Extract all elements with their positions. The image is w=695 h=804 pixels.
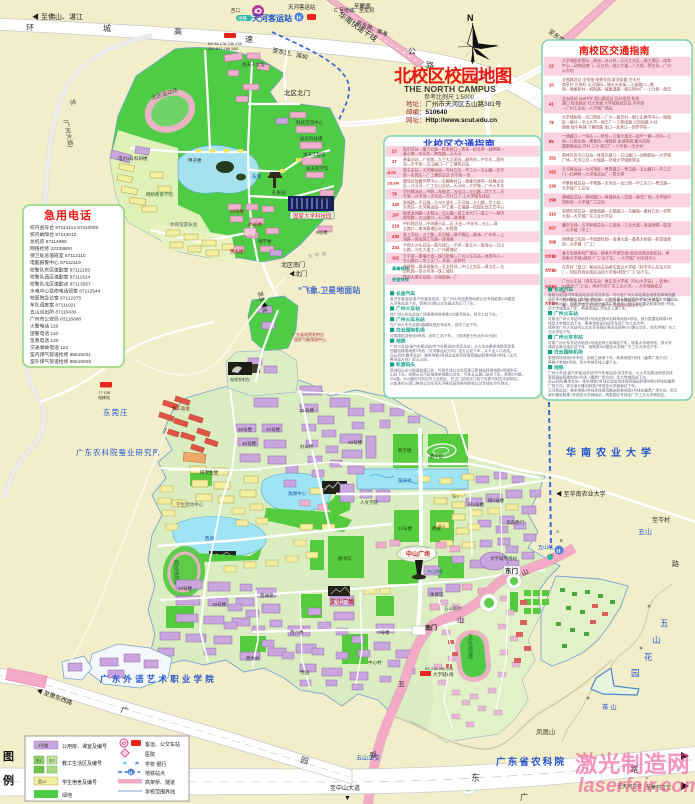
svg-text:科技交流中心: 科技交流中心: [296, 119, 323, 126]
svg-text:3号楼: 3号楼: [38, 742, 48, 748]
svg-text:公: 公: [408, 47, 416, 56]
svg-text:学生活动中心: 学生活动中心: [176, 501, 203, 508]
svg-text:天河客运站: 天河客运站: [252, 13, 292, 23]
svg-text:交通事故电话 122: 交通事故电话 122: [30, 344, 68, 351]
svg-text:234: 234: [392, 245, 400, 250]
svg-text:230: 230: [549, 184, 557, 189]
svg-text:广东外语艺术职业学院: 广东外语艺术职业学院: [100, 674, 217, 684]
svg-text:学校 银行: 学校 银行: [145, 761, 166, 768]
svg-text:西路站转乘地铁3号线（天河客运站方向）至五山站下车，从Ａ出入: 西路站转乘地铁3号线（天河客运站方向）至五山站下车，从Ａ出入口出站。: [390, 348, 514, 353]
svg-text:总机房 87114996: 总机房 87114996: [30, 238, 67, 245]
svg-text:励吾科技楼: 励吾科技楼: [300, 135, 323, 142]
svg-text:78: 78: [549, 120, 554, 125]
svg-text:北校区校园地图: 北校区校园地图: [394, 66, 512, 86]
svg-text:41: 41: [549, 101, 554, 106]
svg-text:西湖苑: 西湖苑: [260, 592, 274, 599]
svg-text:30号楼: 30号楼: [230, 208, 245, 215]
svg-text:40号楼: 40号楼: [266, 426, 281, 433]
svg-text:逸夫工程馆: 逸夫工程馆: [303, 151, 326, 158]
svg-text:长途汽车: 长途汽车: [396, 290, 415, 297]
svg-text:在广州火车东站乘4路模块观光专线车，到华工站下车。: 在广州火车东站乘4路模块观光专线车，到华工站下车。: [390, 322, 481, 327]
svg-text:广场—天河立交—大观路—环城大学城欧警站: 广场—天河立交—大观路—环城大学城欧警站: [562, 157, 640, 162]
svg-text:大学城广工总站: 大学城广工总站: [562, 185, 589, 190]
svg-text:水电中心急修电话班室 87112944: 水电中心急修电话班室 87112944: [30, 287, 101, 294]
svg-text:广州市公安局 83116688: 广州市公安局 83116688: [30, 316, 81, 323]
svg-text:广州火车站/省汽车客运总站/市汽车客运站/流花车站：从火车站: 广州火车站/省汽车客运总站/市汽车客运站/流花车站：从火车站乘坐地铁至体: [548, 370, 673, 375]
svg-text:城: 城: [103, 24, 111, 33]
svg-text:东: 东: [471, 772, 480, 783]
svg-text:东门: 东门: [505, 566, 519, 575]
svg-text:22: 22: [549, 64, 554, 69]
svg-text:五山路口—华工正门—龙洞—至转村: 五山路口—华工正门—龙洞—至转村: [403, 258, 465, 263]
svg-text:博学楼: 博学楼: [258, 238, 272, 245]
svg-text:35号楼: 35号楼: [248, 221, 263, 228]
svg-text:围墩 坂平舆辅 下塘西路 龙口—龙洞口—世界学院—: 围墩 坂平舆辅 下塘西路 龙口—龙洞口—世界学院—: [562, 125, 651, 130]
svg-text:再乘大学城4号线，到大学城专线上课下车。: 再乘大学城4号线，到大学城专线上课下车。: [548, 359, 620, 364]
svg-text:长途汽车: 长途汽车: [554, 286, 573, 293]
svg-text:医院: 医院: [145, 751, 155, 758]
svg-text:507: 507: [549, 226, 557, 231]
svg-text:H: H: [557, 549, 561, 555]
svg-text:东1: 东1: [452, 493, 459, 499]
svg-text:北区南门: 北区南门: [281, 261, 305, 269]
svg-text:五山站: 五山站: [538, 544, 553, 551]
svg-text:府—大学城（广工）: 府—大学城（广工）: [562, 241, 597, 246]
svg-text:溪长隆站转乘7号线至大学城南站，再乘园区专线至广东工业大学城: 溪长隆站转乘7号线至大学城南站，再乘园区专线至广东工业大学城校区。: [548, 392, 668, 397]
svg-text:南校区交通指南: 南校区交通指南: [579, 44, 650, 57]
svg-text:298: 298: [549, 198, 557, 203]
svg-text:—广州工业区—大学城广场站: —广州工业区—大学城广场站: [562, 106, 613, 111]
svg-text:39号楼: 39号楼: [238, 426, 253, 433]
svg-text:230: 230: [392, 234, 400, 239]
svg-text:白云国际机场: 白云国际机场: [396, 327, 425, 334]
svg-text:可乘坐广州火车站内地铁2号线至昌岗站转乘地铁8号线，到万胜围: 可乘坐广州火车站内地铁2号线至昌岗站转乘地铁8号线，到万胜围站转乘4号: [548, 316, 672, 321]
svg-text:公路—沙庄大道工—广州黄埔站: 公路—沙庄大道工—广州黄埔站: [403, 247, 458, 252]
svg-text:和—墩尾新村—城和路—城尾道路—城头新村广—上分校—政法: 和—墩尾新村—城和路—城尾道路—城头新村广—上分校—政法: [562, 87, 671, 92]
svg-text:五山派出所 87110430: 五山派出所 87110430: [30, 309, 77, 316]
svg-text:学校范围界线: 学校范围界线: [145, 789, 175, 796]
svg-text:31号楼: 31号楼: [300, 407, 315, 414]
svg-text:天河客运站: 天河客运站: [288, 3, 316, 11]
svg-text:孔雀园: 孔雀园: [272, 189, 286, 196]
svg-text:五路口—南海黄埔区站—车陂路: 五路口—南海黄埔区站—车陂路: [403, 226, 458, 231]
svg-text:236路、B10路均可到达华工北校区，在正门站或北门站下车即: 236路、B10路均可到达华工北校区，在正门站或北门站下车即可到达本部校区。: [390, 376, 521, 381]
svg-text:中山广场: 中山广场: [406, 550, 430, 558]
svg-text:转乘大学城3线至“广工”站下车。—大学城广州专线中心: 转乘大学城3线至“广工”站下车。—大学城广州专线中心: [562, 255, 656, 260]
svg-text:197: 197: [392, 213, 400, 218]
svg-text:—大学城（华工）: —大学城（华工）: [562, 227, 593, 232]
svg-text:广州火车东站: 广州火车东站: [396, 316, 425, 323]
svg-text:体育馆游泳池: 体育馆游泳池: [170, 221, 197, 228]
svg-text:南门: 南门: [425, 624, 437, 632]
svg-text:急用电话: 急用电话: [44, 208, 92, 222]
svg-text:山: 山: [457, 615, 464, 624]
svg-text:78: 78: [392, 191, 397, 196]
svg-text:甲子楼: 甲子楼: [188, 157, 202, 164]
svg-text:THE NORTH CAMPUS: THE NORTH CAMPUS: [404, 84, 496, 94]
svg-text:130: 130: [392, 202, 400, 207]
svg-text:国家大学科技园: 国家大学科技园: [293, 212, 332, 220]
svg-text:站转乘地铁3号线（番禺广场方向），到汉溪长隆站转乘地铁7号线: 站转乘地铁3号线（番禺广场方向），到汉溪长隆站转乘地铁7号线至大学城南站。: [548, 297, 681, 302]
svg-text:“飞象.卫星地面站: “飞象.卫星地面站: [298, 285, 360, 295]
svg-text:山花园—至沙河顶—珠工城际: 山花园—至沙河顶—珠工城际: [403, 269, 454, 274]
svg-text:7号楼: 7号楼: [378, 629, 390, 636]
svg-text:至中山大道: 至中山大道: [330, 784, 360, 792]
svg-text:可乘国机场快线8号线，到华工站下车。（机场搭士的北约45分钟: 可乘国机场快线8号线，到华工站下车。（机场搭士的北约45分钟）: [390, 333, 499, 338]
svg-text:中山铜像: 中山铜像: [427, 568, 443, 574]
svg-text:室内煤气管道抢修 85515031: 室内煤气管道抢修 85515031: [30, 351, 91, 358]
svg-text:1号楼: 1号楼: [318, 195, 330, 202]
svg-text:电视发射台: 电视发射台: [230, 376, 250, 382]
svg-text:客运、公交车站: 客运、公交车站: [145, 741, 180, 748]
svg-text:匪警电话 110: 匪警电话 110: [30, 330, 59, 337]
svg-text:N: N: [467, 13, 474, 23]
svg-text:252 517 796 583: 252 517 796 583: [208, 46, 239, 51]
svg-text:部枢纽—大学城广工总站: 部枢纽—大学城广工总站: [562, 199, 605, 204]
svg-text:校医院急诊室 87112375: 校医院急诊室 87112375: [30, 295, 81, 302]
svg-text:白云机场/嘉禾车站：乘坐地铁3号线北延段至体育西路站转乘地铁: 白云机场/嘉禾车站：乘坐地铁3号线北延段至体育西路站转乘地铁3号线往番禺: [548, 379, 675, 384]
svg-text:西秀村: 西秀村: [246, 655, 260, 662]
svg-text:218: 218: [392, 223, 400, 228]
svg-text:绿地: 绿地: [62, 792, 72, 799]
svg-text:乘搭机场快线6号专线，到珠江新城下车，转乘地铁3号线（番禺广: 乘搭机场快线6号专线，到珠江新城下车，转乘地铁3号线（番禺广场方向），: [548, 355, 674, 360]
svg-text:火车站: 火车站: [562, 68, 574, 73]
svg-text:校警队西区值勤室 87111514: 校警队西区值勤室 87111514: [30, 273, 91, 280]
svg-text:暨南大道东延段—五湖观湖—广: 暨南大道东延段—五湖观湖—广: [403, 275, 458, 280]
svg-text:310: 310: [549, 212, 557, 217]
svg-text:教学区: 教学区: [430, 453, 444, 460]
svg-text:体育馆: 体育馆: [430, 591, 444, 598]
svg-text:广场方向，到汉溪长隆站转乘7号线至大学城南站下车。: 广场方向，到汉溪长隆站转乘7号线至大学城南站下车。: [548, 383, 639, 388]
svg-text:富都客运站 芳村 三沙 峻立厂—少年家—天才村: 富都客运站 芳村 三沙 峻立厂—少年家—天才村: [562, 143, 643, 148]
svg-text:86: 86: [549, 139, 554, 144]
svg-text:研1号楼: 研1号楼: [468, 501, 485, 508]
svg-text:B: B: [560, 538, 563, 543]
svg-text:高: 高: [174, 26, 182, 36]
svg-text:业大学站下车。: 业大学站下车。: [548, 329, 574, 334]
svg-text:例: 例: [3, 773, 14, 787]
svg-text:B2 236 296 506: B2 236 296 506: [425, 666, 454, 671]
svg-text:5号楼: 5号楼: [316, 229, 328, 236]
svg-text:天河客运站：可乘坐地铁3号线（番禺广场方向）至汉溪长隆站转乘: 天河客运站：可乘坐地铁3号线（番禺广场方向）至汉溪长隆站转乘地铁7号线，: [548, 301, 677, 306]
svg-text:网络抢修 22338800: 网络抢修 22338800: [30, 245, 72, 252]
svg-text:五: 五: [660, 618, 669, 628]
svg-text:五山新村: 五山新村: [444, 605, 462, 612]
svg-text:41/78: 41/78: [387, 171, 396, 175]
svg-text:天河客运站下车，转乘203路公交车直达至正门下车。: 天河客运站下车，转乘203路公交车直达至正门下车。: [390, 301, 477, 306]
svg-text:地铁: 地铁: [554, 364, 564, 371]
svg-text:路: 路: [672, 559, 679, 568]
svg-text:东1: 东1: [36, 758, 42, 763]
svg-text:广: 广: [520, 792, 528, 802]
svg-text:网址：Http://www.scut.edu.cn: 网址：Http://www.scut.edu.cn: [406, 115, 497, 124]
svg-text:逸湖中心: 逸湖中心: [288, 490, 306, 497]
svg-text:海路—珠海珠江东路—珠海城: 海路—珠海珠江东路—珠海城: [403, 237, 454, 242]
svg-text:规划路—五山路口—天河城—珠海楼: 规划路—五山路口—天河城—珠海楼: [403, 215, 465, 220]
svg-text:◀ 至华南农业大学: ◀ 至华南农业大学: [556, 490, 606, 498]
svg-text:17号楼: 17号楼: [178, 585, 193, 592]
svg-text:22: 22: [392, 149, 397, 154]
svg-text:广州火车站: 广州火车站: [396, 305, 420, 312]
svg-text:高架桥、隧道: 高架桥、隧道: [145, 779, 175, 786]
svg-text:20: 20: [549, 82, 554, 87]
svg-text:校警队东区值勤室 87111155: 校警队东区值勤室 87111155: [30, 266, 90, 273]
svg-text:茶 山: 茶 山: [602, 702, 617, 711]
svg-text:西六楼: 西六楼: [290, 629, 304, 636]
svg-text:山: 山: [652, 635, 661, 645]
svg-text:各汽车客运站/各汽车客运总站：至广州火车站乘侧地铁公交专线能: 各汽车客运站/各汽车客运总站：至广州火车站乘侧地铁公交专线能乘236路至: [390, 296, 515, 301]
svg-text:架—东莞庄—广工建筑总站 天平架—至: 架—东莞庄—广工建筑总站 天平架—至: [403, 172, 470, 177]
svg-text:新洲码头永兴街渡轮渡口处，可乘Ｂ线公交车至珠江新城站转乘地铁: 新洲码头永兴街渡轮渡口处，可乘Ｂ线公交车至珠江新城站转乘地铁3号线到五: [390, 367, 518, 372]
svg-text:各就近站/省汽车客运站总站/流花车站：可行至广州火车站乘坐地: 各就近站/省汽车客运站总站/流花车站：可行至广州火车站乘坐地铁至体育西路: [548, 292, 676, 297]
svg-text:262: 262: [549, 170, 557, 175]
svg-text:地铁: 地铁: [396, 337, 406, 344]
svg-text:45号楼: 45号楼: [242, 440, 257, 447]
svg-text:国家气象预测中心: 国家气象预测中心: [294, 336, 326, 342]
svg-text:游泳池: 游泳池: [398, 477, 412, 484]
svg-text:至岑村: 至岑村: [652, 516, 670, 524]
svg-text:A: A: [556, 529, 559, 534]
svg-text:人文学院: 人文学院: [360, 499, 378, 506]
svg-text:育西路站转乘地铁3号线（番禺广场方向）至大学城南站下车。: 育西路站转乘地铁3号线（番禺广场方向）至大学城南站下车。: [548, 374, 650, 379]
svg-text:天河客运站：乘坐地铁3号线至体育西路站转乘地铁3号线往番禺广: 天河客运站：乘坐地铁3号线至体育西路站转乘地铁3号线往番禺广场方向，到汉: [548, 387, 678, 392]
svg-text:五山: 五山: [638, 527, 652, 536]
svg-text:地铁站点: 地铁站点: [145, 770, 165, 777]
svg-text:大学城1: 大学城1: [545, 254, 557, 259]
svg-text:激光制造网: 激光制造网: [575, 751, 690, 777]
svg-text:校警队北区值勤点 87113557: 校警队北区值勤点 87113557: [30, 280, 91, 287]
svg-text:▼: ▼: [344, 795, 351, 802]
svg-text:从鱼珠码头渡口乘坐公交车至天河客运站转乘地铁或公交专线车均可: 从鱼珠码头渡口乘坐公交车至天河客运站转乘地铁或公交专线车均可到达。: [390, 381, 512, 386]
svg-text:竹园: 竹园: [300, 669, 309, 676]
svg-text:地址：广州市天河区五山路381号: 地址：广州市天河区五山路381号: [406, 99, 502, 108]
svg-text:车队调度室 87111021: 车队调度室 87111021: [30, 302, 76, 309]
svg-text:），到综合商业南区站转大学城4线至“广工”站下车。: ），到综合商业南区站转大学城4线至“广工”站下车。: [562, 269, 652, 274]
svg-text:131/140: 131/140: [387, 182, 399, 186]
svg-text:东2: 东2: [49, 758, 55, 763]
svg-text:东5: 东5: [438, 523, 445, 529]
svg-text:东湖: 东湖: [252, 173, 261, 180]
svg-text:火警电话 119: 火警电话 119: [30, 323, 59, 330]
svg-text:图书馆: 图书馆: [334, 599, 348, 606]
svg-text:白云国际机场: 白云国际机场: [554, 349, 583, 356]
svg-text:中心—动物园南门—区庄站—临江大道—人文馆—警东站—广州: 中心—动物园南门—区庄站—临江大道—人文馆—警东站—广州: [562, 63, 671, 68]
svg-text:保卫处总值班室 87112110: 保卫处总值班室 87112110: [30, 252, 86, 259]
svg-text:童心南—东风东—陶育路—至天河: 童心南—东风东—陶育路—至天河: [403, 151, 461, 156]
svg-text:252: 252: [549, 156, 557, 161]
svg-text:laserfair.com: laserfair.com: [578, 775, 695, 797]
svg-text:公用房、课室及编号: 公用房、课室及编号: [62, 743, 107, 750]
svg-text:图: 图: [3, 750, 14, 763]
svg-text:H: H: [297, 16, 301, 22]
svg-text:302: 302: [392, 256, 400, 261]
svg-text:邮编：510640: 邮编：510640: [406, 107, 448, 116]
svg-text:网络教育学院: 网络教育学院: [146, 191, 173, 198]
svg-text:城综合商业南区站下车，或转乘382路至大学城广东工业大学站下: 城综合商业南区站下车，或转乘382路至大学城广东工业大学站下车。: [548, 344, 661, 349]
svg-text:凤凰山: 凤凰山: [536, 727, 556, 736]
svg-text:校内查号台 87113114 87110000: 校内查号台 87113114 87110000: [30, 224, 99, 231]
svg-text:大学城1线: 大学城1线: [433, 671, 454, 678]
svg-text:广州火车东站: 广州火车东站: [554, 334, 583, 341]
svg-text:学生宿舍及编号: 学生宿舍及编号: [62, 779, 97, 786]
svg-text:508: 508: [549, 240, 557, 245]
svg-text:可乘广州火车东站内地铁3号线至珠江新城站下车，转乘大学城专线: 可乘广州火车东站内地铁3号线至珠江新城站下车，转乘大学城专线，到大学: [548, 340, 672, 345]
svg-text:区—沙河顶—广工五山总站—天河站—大学城—广州火车东: 区—沙河顶—广工五山总站—天河站—大学城—广州火车东: [403, 183, 504, 188]
svg-text:华南农业大学: 华南农业大学: [566, 446, 656, 459]
svg-text:H: H: [129, 771, 132, 776]
svg-text:广东农科院蚕业研究所: 广东农科院蚕业研究所: [76, 447, 161, 457]
svg-text:广东省农科院: 广东省农科院: [496, 756, 566, 768]
svg-text:东区运动场: 东区运动场: [467, 633, 473, 660]
svg-text:电脑报警中心 87112119: 电脑报警中心 87112119: [30, 259, 81, 266]
svg-text:广州火车站: 广州火车站: [554, 310, 578, 317]
svg-text:至大学城南站下车，再乘坐园区专线车上课下车。: 至大学城南站下车，再乘坐园区专线车上课下车。: [548, 305, 629, 310]
svg-text:广州火车站/省汽车客运站/市汽车客运站/流花车站：从火车站乘: 广州火车站/省汽车客运站/市汽车客运站/流花车站：从火车站乘坐地铁至体育: [390, 344, 515, 349]
svg-text:白云机场/嘉禾车站：乘坐地铁3号线北延段至体育西路站转乘地铁: 白云机场/嘉禾车站：乘坐地铁3号线北延段至体育西路站转乘地铁3号线（天河: [390, 352, 517, 357]
svg-text:参考比例尺 1:5000: 参考比例尺 1:5000: [424, 93, 475, 101]
svg-text:北区北门: 北区北门: [284, 88, 310, 97]
svg-text:花: 花: [644, 652, 653, 662]
svg-text:◀ 至佛山、湛江: ◀ 至佛山、湛江: [32, 12, 83, 21]
svg-text:西12: 西12: [38, 779, 47, 784]
svg-text:西湖: 西湖: [205, 535, 214, 542]
svg-text:平架—沙河顶—天河北—万行口 广工大学城专线站: 平架—沙河顶—天河北—万行口 广工大学城专线站: [403, 194, 490, 199]
svg-text:客运站方向）至五山站。: 客运站方向）至五山站。: [390, 357, 431, 362]
svg-text:五: 五: [398, 680, 405, 688]
svg-text:中心村: 中心村: [368, 659, 382, 666]
svg-text:大观—大学城广东工业大学站: 大观—大学城广东工业大学站: [562, 213, 613, 218]
svg-text:逸夫科学馆: 逸夫科学馆: [306, 165, 329, 172]
svg-text:室外煤气管道抢修 85515929: 室外煤气管道抢修 85515929: [30, 358, 91, 365]
svg-text:至麓湖: 至麓湖: [354, 2, 371, 10]
svg-text:33号楼: 33号楼: [348, 439, 363, 446]
svg-text:电梯站: 电梯站: [98, 394, 110, 400]
svg-text:教工生活区及编号: 教工生活区及编号: [62, 760, 102, 767]
svg-text:东莞庄—天河客运站—华工城—长福路—校园本部文艺中心: 东莞庄—天河客运站—华工城—长福路—校园本部文艺中心: [403, 204, 504, 209]
svg-text:逸夫人文馆: 逸夫人文馆: [242, 61, 265, 68]
svg-text:急救电话 120: 急救电话 120: [30, 337, 59, 344]
svg-text:校内故障台 87113012: 校内故障台 87113012: [30, 231, 77, 238]
svg-text:12号楼: 12号楼: [398, 525, 413, 532]
svg-text:西九楼: 西九楼: [230, 248, 244, 255]
svg-text:五山立交: 五山立交: [356, 754, 380, 762]
svg-text:82路至“广工”站，再步行至广东工业大学。—大学城枢纽总: 82路至“广工”站，再步行至广东工业大学。—大学城枢纽总: [562, 283, 662, 288]
svg-text:研2号楼: 研2号楼: [488, 497, 505, 504]
svg-text:山站下车。如果从天河区域乘坐线路公交车，可在五山路口站台下车: 山站下车。如果从天河区域乘坐线路公交车，可在五山路口站台下车，转乘230路、: [390, 372, 525, 377]
svg-text:园: 园: [631, 668, 640, 678]
svg-text:速: 速: [245, 35, 253, 44]
svg-text:轮渡码头: 轮渡码头: [396, 361, 415, 368]
svg-text:东莞庄: 东莞庄: [103, 407, 129, 417]
svg-text:或乘坐广州火车站内公交车至海珠区客运站转乘310路公交车，到: 或乘坐广州火车站内公交车至海珠区客运站转乘310路公交车，到大学城广东工: [548, 325, 676, 330]
svg-text:教学楼: 教学楼: [398, 447, 412, 454]
svg-text:线至大学城北站下车，再乘坐校区内线专车至广东工业大学。: 线至大学城北站下车，再乘坐校区内线专车至广东工业大学。: [548, 320, 648, 325]
svg-text:华农西门: 华农西门: [506, 519, 524, 526]
svg-text:环: 环: [26, 23, 34, 32]
svg-text:门—石牌桥—大学城北站广—警示停: 门—石牌桥—大学城北站广—警示停: [562, 171, 624, 176]
svg-text:研究生楼: 研究生楼: [200, 469, 218, 476]
svg-text:站—天平架—五山路口—广工建筑总站: 站—天平架—五山路口—广工建筑总站: [403, 162, 469, 167]
svg-text:大学城专线站: 大学城专线站: [490, 555, 517, 562]
svg-text:27: 27: [392, 159, 397, 164]
svg-text:18号楼: 18号楼: [212, 601, 227, 608]
svg-text:电力1号科研楼: 电力1号科研楼: [118, 155, 148, 162]
svg-text:教工宿舍: 教工宿舍: [172, 405, 190, 412]
svg-text:图书馆: 图书馆: [338, 555, 352, 562]
svg-text:地铁: 地铁: [238, 15, 247, 22]
svg-text:办公楼: 办公楼: [300, 443, 314, 450]
svg-text:◀北门: ◀北门: [289, 270, 307, 278]
svg-text:在广州火车站总站广场乘搭地铁或乘236路专线车，到华工站下车: 在广州火车站总站广场乘搭地铁或乘236路专线车，到华工站下车。: [390, 311, 499, 316]
svg-text:大学城2: 大学城2: [545, 268, 557, 273]
